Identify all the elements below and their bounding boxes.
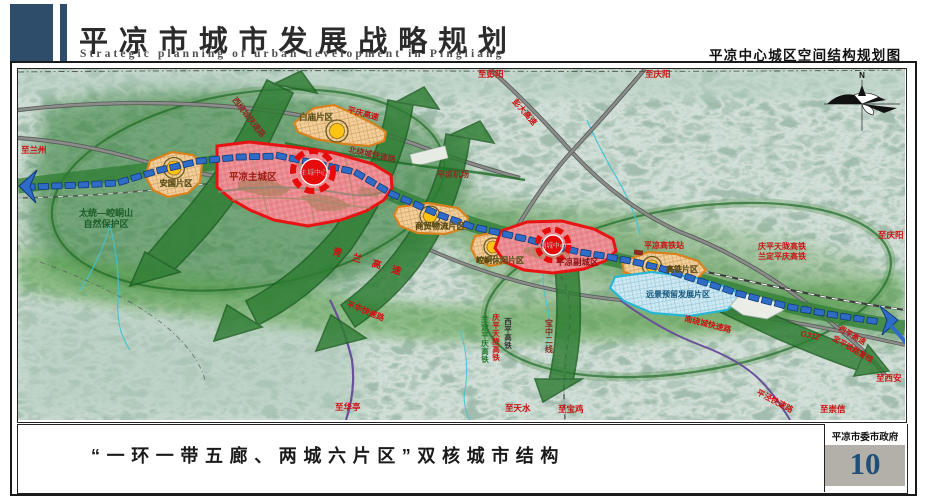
svg-text:至天水: 至天水 — [505, 403, 531, 413]
svg-text:白庙片区: 白庙片区 — [299, 112, 334, 122]
svg-text:平凉高铁站: 平凉高铁站 — [644, 240, 684, 250]
svg-text:至宝鸡: 至宝鸡 — [558, 404, 584, 414]
svg-text:远景预留发展片区: 远景预留发展片区 — [646, 289, 710, 299]
svg-text:宝中二线: 宝中二线 — [545, 318, 553, 354]
svg-text:太统—崆峒山: 太统—崆峒山 — [78, 207, 133, 218]
svg-text:商贸物流片区: 商贸物流片区 — [415, 221, 465, 231]
svg-text:安国片区: 安国片区 — [160, 178, 193, 188]
svg-text:至西安: 至西安 — [876, 373, 902, 383]
svg-text:至兰州: 至兰州 — [21, 145, 47, 155]
svg-text:高铁片区: 高铁片区 — [666, 264, 698, 274]
svg-text:平凉机场: 平凉机场 — [437, 169, 469, 179]
svg-text:庆平天陇高铁: 庆平天陇高铁 — [491, 312, 500, 362]
svg-text:庆平天陇高铁: 庆平天陇高铁 — [757, 241, 806, 251]
svg-text:N: N — [859, 71, 865, 80]
svg-text:至华亭: 至华亭 — [335, 402, 361, 412]
svg-text:崆峒休闲片区: 崆峒休闲片区 — [476, 255, 524, 265]
svg-text:西平高铁: 西平高铁 — [504, 317, 512, 350]
svg-text:至崇信: 至崇信 — [820, 404, 846, 414]
svg-text:自然保护区: 自然保护区 — [83, 218, 128, 229]
svg-text:至庆阳: 至庆阳 — [878, 230, 904, 240]
svg-text:主城中心: 主城中心 — [300, 168, 327, 177]
svg-text:兰定平庆高铁: 兰定平庆高铁 — [758, 251, 806, 261]
svg-text:至庆阳: 至庆阳 — [645, 69, 671, 79]
svg-text:兰定平庆高铁: 兰定平庆高铁 — [480, 314, 489, 364]
svg-text:平凉主城区: 平凉主城区 — [229, 171, 277, 183]
svg-text:至彭阳: 至彭阳 — [478, 69, 504, 79]
svg-text:平凉副城区: 平凉副城区 — [556, 257, 599, 267]
svg-text:副城中心: 副城中心 — [540, 241, 567, 250]
